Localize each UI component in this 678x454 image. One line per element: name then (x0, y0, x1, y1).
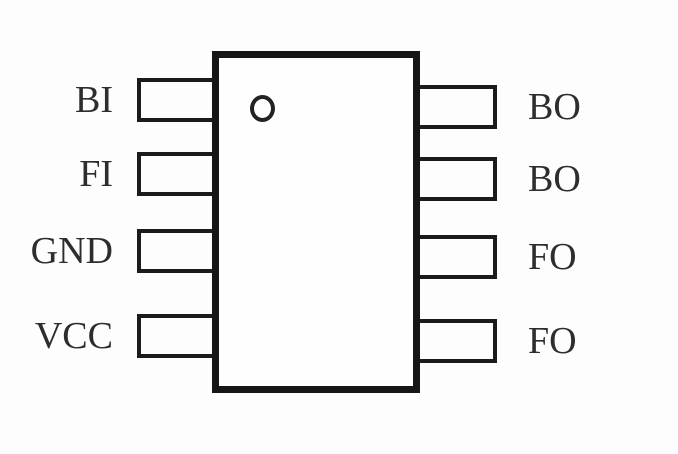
pin-lead-left-2 (137, 152, 218, 196)
pin-lead-right-3 (414, 235, 497, 279)
pin1-indicator-dot-icon (250, 95, 275, 122)
chip-body (212, 51, 420, 393)
pinout-diagram: BI FI GND VCC BO BO FO FO (0, 0, 678, 454)
pin-label-vcc: VCC (12, 314, 113, 358)
pin-lead-left-3 (137, 229, 218, 273)
pin-label-bi: BI (12, 78, 113, 122)
pin-label-fo-1: FO (528, 235, 638, 279)
pin-label-fo-2: FO (528, 319, 638, 363)
pin-lead-right-4 (414, 319, 497, 363)
pin-label-bo-1: BO (528, 85, 638, 129)
pin-label-bo-2: BO (528, 157, 638, 201)
pin-lead-left-1 (137, 78, 218, 122)
pin-lead-left-4 (137, 314, 218, 358)
pin-lead-right-1 (414, 85, 497, 129)
pin-label-fi: FI (12, 152, 113, 196)
pin-label-gnd: GND (12, 229, 113, 273)
pin-lead-right-2 (414, 157, 497, 201)
